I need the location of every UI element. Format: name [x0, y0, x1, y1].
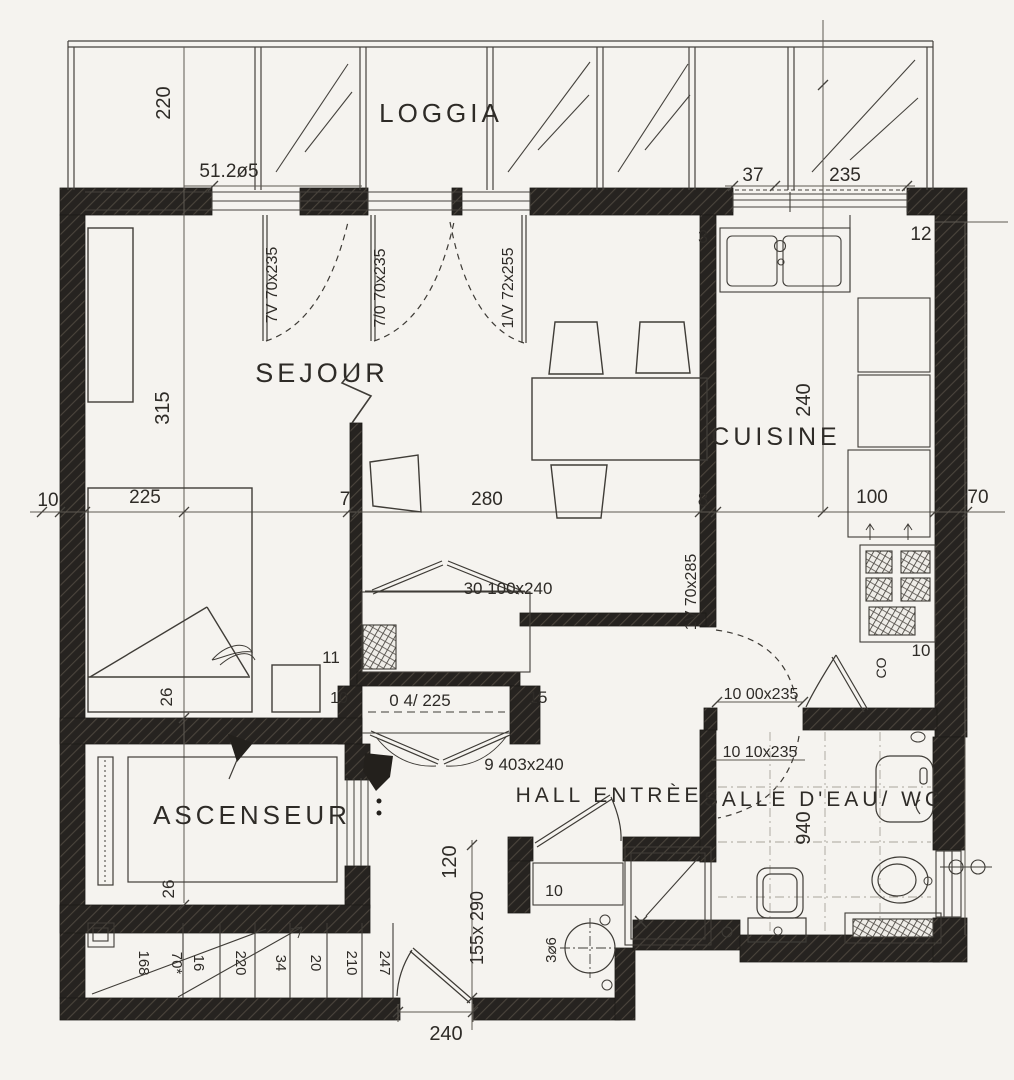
dim-area-note: 51.2ø5 — [199, 161, 258, 182]
label-window-a: 1/V 72x255 — [500, 247, 517, 328]
kitchen-stove — [860, 545, 935, 642]
stair-note: 34 — [272, 955, 289, 972]
chair — [549, 322, 603, 374]
note-10-vestibule: 10 — [545, 883, 563, 900]
label-door-a: 7V 70x235 — [264, 247, 281, 324]
wall-top-d — [530, 188, 733, 215]
door-kitchen-leaf — [806, 655, 868, 712]
dining-table — [532, 378, 707, 460]
kitchen-window — [733, 190, 907, 212]
floor-plan-drawing: LOGGIA SEJOUR CUISINE ASCENSEUR HALL ENT… — [0, 0, 1014, 1080]
wall-bath-bottom — [740, 935, 940, 962]
wall-kitchen-bath-stub — [704, 708, 717, 730]
dim-bath-h: 940 — [793, 811, 815, 844]
dim-225: 225 — [129, 487, 161, 508]
wall-hall-step — [615, 948, 635, 1020]
room-label-cuisine: CUISINE — [711, 423, 840, 451]
wall-vestibule-left — [508, 861, 530, 913]
note-bed: 26 — [157, 688, 176, 707]
stair-note: 70* — [168, 952, 185, 975]
dim-sejour-h: 315 — [152, 391, 174, 424]
kitchen-sink — [720, 215, 850, 292]
tick-marks — [37, 80, 972, 1017]
label-door-b: 7/0 70x235 — [372, 248, 389, 327]
soap-dish — [911, 732, 925, 742]
loggia-dividers — [255, 47, 794, 190]
hob-arrow — [866, 524, 874, 540]
wall-entry-right — [473, 998, 620, 1020]
wall-closet-top-right — [520, 613, 706, 626]
room-label-bath: SALLE D'EAU/ WC — [704, 788, 944, 811]
room-label-ascenseur: ASCENSEUR — [153, 800, 351, 830]
wardrobe — [362, 592, 530, 733]
dim-kitchen-window-b: 235 — [829, 165, 861, 186]
bath-window — [936, 851, 992, 917]
label-pass-b: 10 10x235 — [723, 744, 798, 761]
wall-lift-right-b — [345, 866, 370, 908]
dim-280: 280 — [471, 489, 503, 510]
armchair — [370, 455, 421, 512]
doorstop-icon — [600, 915, 610, 925]
wall-right-kitchen — [935, 215, 967, 737]
label-door-hall: 9 403x240 — [484, 755, 563, 774]
hob-arrow — [904, 524, 912, 540]
wall-top-e — [907, 188, 967, 215]
note-heater: CO — [873, 657, 889, 678]
dim-8: 8 — [698, 490, 709, 511]
label-pass-a: 10 00x235 — [724, 686, 799, 703]
dining-set — [532, 322, 707, 518]
wall-sejour-kitchen — [700, 215, 716, 627]
note-10-closet: 10 — [330, 690, 348, 707]
wall-stairs-bottom — [60, 998, 400, 1020]
chair — [551, 465, 607, 518]
wall-vestibule-a — [508, 837, 533, 861]
side-table — [272, 665, 320, 712]
wall-bath-right-b — [933, 918, 967, 962]
note-10-kitchen: 10 — [912, 641, 931, 660]
note-15: 15 — [529, 688, 548, 707]
toilet — [872, 857, 932, 903]
floor-plan-page: LOGGIA SEJOUR CUISINE ASCENSEUR HALL ENT… — [0, 0, 1014, 1080]
room-label-sejour: SEJOUR — [255, 358, 389, 388]
dim-7: 7 — [340, 489, 351, 510]
note-lift: 26 — [159, 880, 178, 899]
dim-kitchen-window-a: 37 — [742, 165, 763, 186]
dim-70: 70 — [967, 487, 988, 508]
stair-note: 247 — [376, 950, 393, 975]
note-3: 3 — [698, 227, 708, 247]
dim-kitchen-h: 240 — [793, 383, 815, 416]
dim-100: 100 — [856, 487, 888, 508]
bed — [88, 488, 255, 712]
stair-note: 16 — [190, 955, 207, 972]
label-door-kitchen: 1V 70x285 — [683, 554, 700, 631]
stair-note: 20 — [307, 955, 324, 972]
shelf-sejour — [88, 228, 133, 402]
note-11: 11 — [322, 648, 340, 667]
chair — [636, 322, 690, 373]
dimension-labels: 220 51.2ø5 37 235 315 240 940 120 155x 2… — [152, 86, 932, 1045]
label-closet-note: 0 4/ 225 — [389, 691, 450, 710]
label-closet-top: 30 100x240 — [464, 579, 553, 598]
dim-10: 10 — [37, 490, 58, 511]
column — [560, 918, 620, 978]
dim-loggia-depth: 220 — [153, 86, 175, 119]
note-12: 12 — [910, 224, 931, 245]
dim-entry-w: 240 — [429, 1023, 462, 1045]
wall-closet-mid — [357, 672, 520, 686]
stair-note: 210 — [343, 950, 360, 975]
note-column: 3⌀6 — [543, 937, 560, 963]
room-label-hall: HALL ENTRÈE — [516, 784, 703, 807]
stair-note: 168 — [135, 950, 152, 975]
furniture — [88, 215, 992, 998]
room-label-loggia: LOGGIA — [379, 98, 503, 128]
wall-vestibule-b — [623, 837, 700, 861]
wall-lift-bottom — [60, 905, 370, 933]
wall-left — [60, 215, 85, 998]
main-dimension-labels: 10 225 7 280 8 100 70 — [37, 487, 988, 511]
wall-kitchen-bath — [803, 708, 937, 730]
door-entry — [397, 948, 473, 1003]
doorstop-icon — [602, 980, 612, 990]
stair-note: 220 — [232, 950, 249, 975]
dim-vestibule: 155x 290 — [467, 891, 487, 965]
wall-partition — [350, 423, 362, 686]
dim-hall-h: 120 — [439, 845, 461, 878]
stair-labels: 168 70* 16 220 34 20 210 247 — [135, 950, 393, 975]
wall-lift-top — [60, 718, 362, 744]
